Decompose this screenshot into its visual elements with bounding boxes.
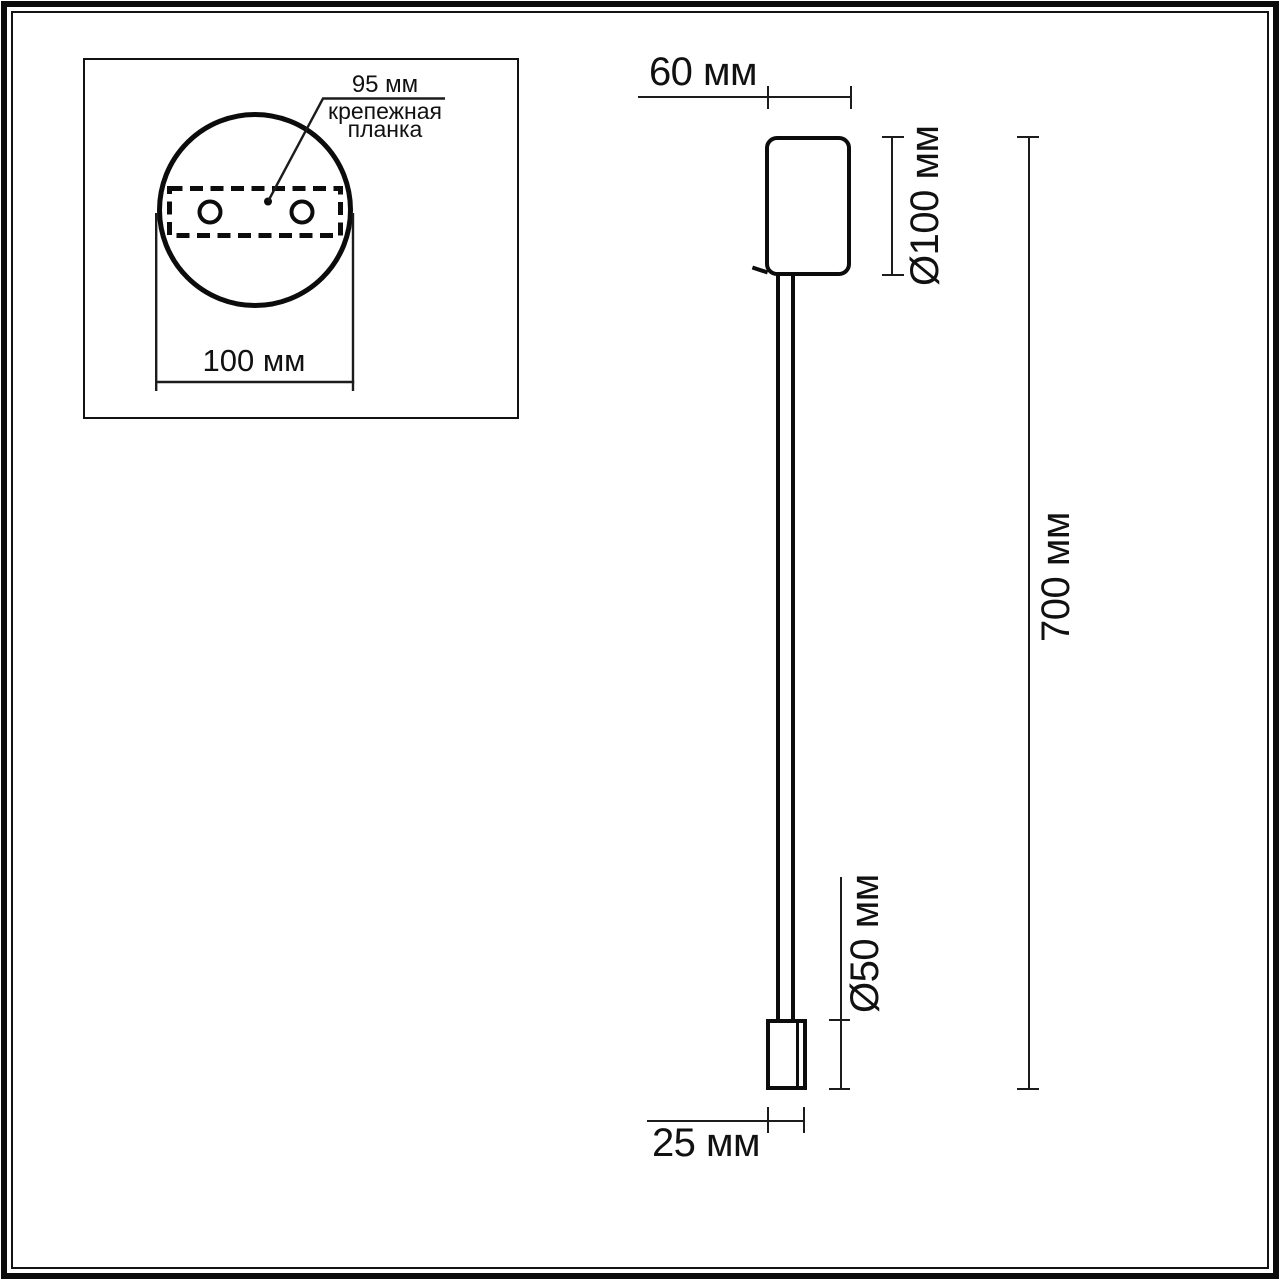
dimension-line-60mm	[638, 96, 852, 98]
label-plate-width: 100 мм	[171, 345, 337, 376]
lamp-head-cylinder	[766, 1019, 807, 1090]
label-top-width: 60 мм	[638, 52, 768, 92]
label-head-diameter: Ø50 мм	[845, 874, 885, 1013]
dimension-tick	[803, 1107, 805, 1133]
dimension-tick	[829, 1019, 850, 1021]
label-mount-diameter: Ø100 мм	[905, 126, 945, 286]
dimension-tick	[829, 1088, 850, 1090]
dimension-tick	[1017, 1088, 1039, 1090]
label-head-width: 25 мм	[641, 1123, 771, 1163]
lamp-mount-body	[765, 136, 851, 276]
label-overall-height: 700 мм	[1036, 512, 1076, 642]
label-mounting-bar: крепежная планка	[323, 103, 447, 138]
dimension-line-overall-height	[1028, 137, 1030, 1089]
lamp-head-edge-line	[796, 1022, 799, 1087]
screw-hole-right	[292, 202, 313, 223]
dimension-line-head-diameter	[840, 877, 842, 1089]
technical-drawing-canvas: 95 мм крепежная планка 100 мм 60 мм Ø100…	[0, 0, 1280, 1280]
mount-plate-circle	[160, 115, 351, 306]
dimension-tick	[850, 86, 852, 109]
label-hole-spacing: 95 мм	[323, 72, 447, 97]
dimension-line-mount-diameter	[891, 137, 893, 275]
dimension-tick	[882, 274, 904, 276]
mounting-bar-dashed-outline	[170, 189, 341, 236]
screw-hole-left	[200, 202, 221, 223]
dimension-tick	[882, 136, 904, 138]
lamp-rod	[776, 274, 795, 1020]
dimension-tick	[1017, 136, 1039, 138]
